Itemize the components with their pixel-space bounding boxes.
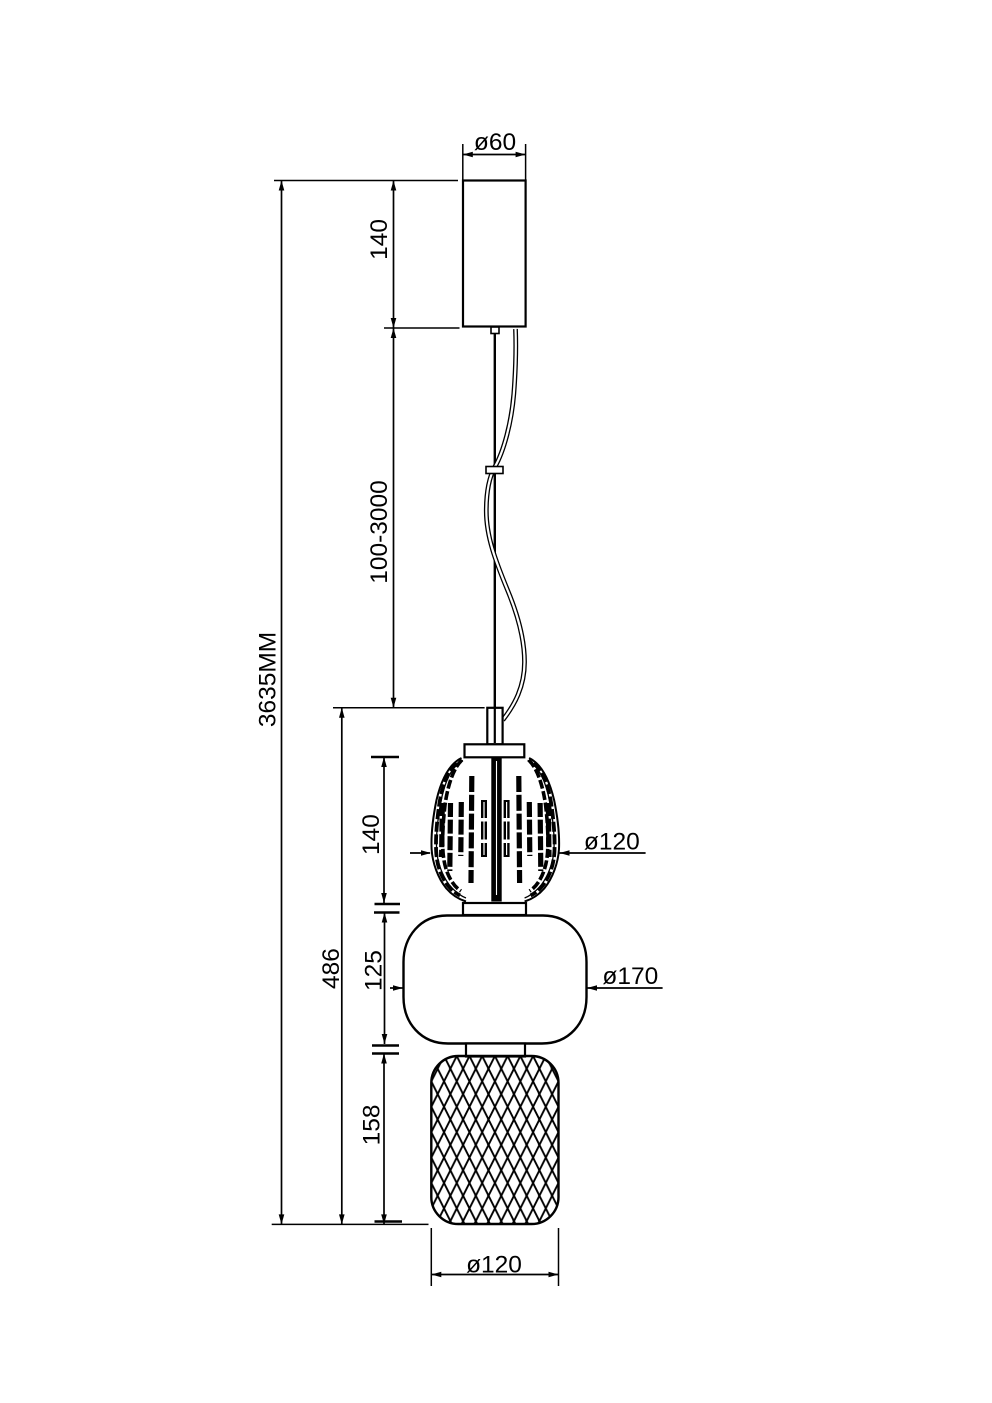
svg-text:ø60: ø60	[474, 129, 516, 156]
svg-text:ø170: ø170	[602, 963, 658, 990]
svg-text:100-3000: 100-3000	[366, 480, 393, 584]
svg-text:3635MM: 3635MM	[255, 632, 282, 727]
svg-text:140: 140	[358, 814, 385, 855]
svg-text:140: 140	[366, 219, 393, 260]
svg-text:158: 158	[359, 1104, 386, 1145]
svg-text:ø120: ø120	[584, 829, 640, 856]
svg-text:ø120: ø120	[466, 1252, 522, 1279]
svg-text:486: 486	[318, 948, 345, 989]
svg-text:125: 125	[361, 950, 388, 991]
